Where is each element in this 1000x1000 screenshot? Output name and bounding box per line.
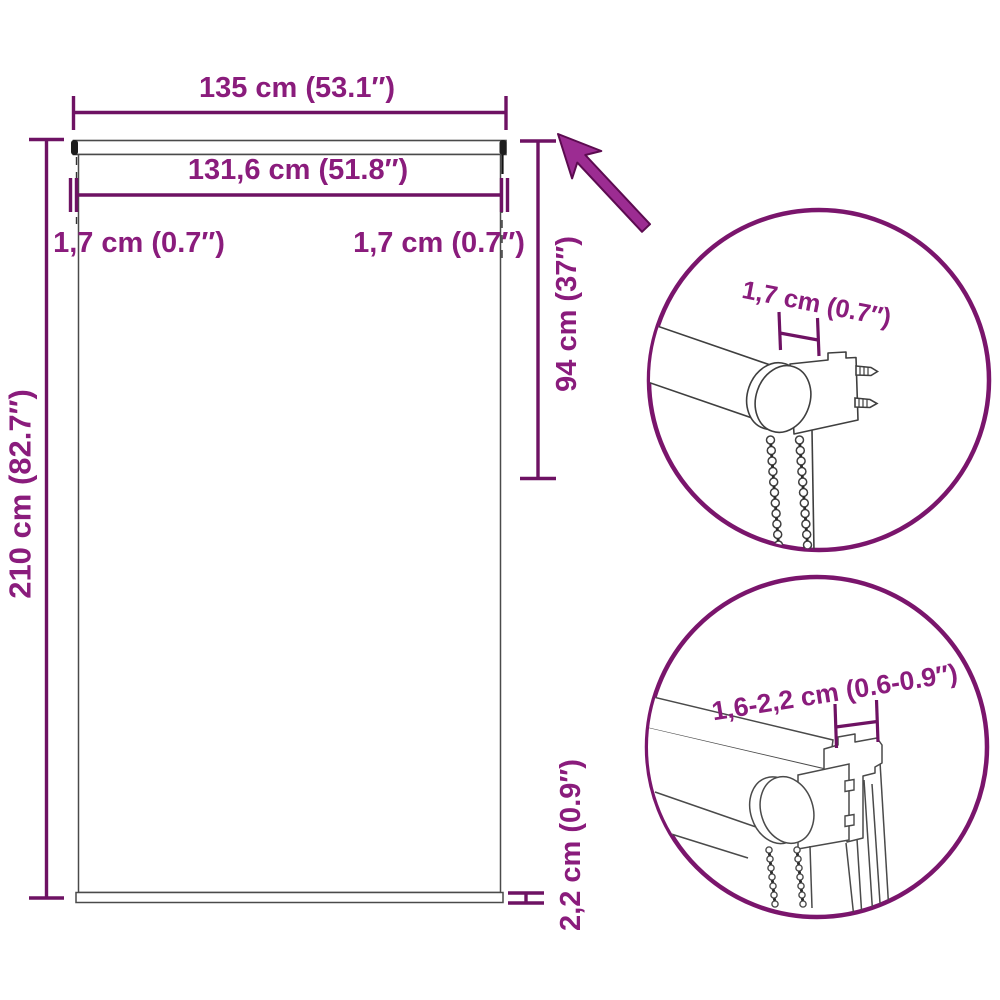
svg-text:94 cm (37″): 94 cm (37″) (551, 236, 583, 392)
svg-text:131,6 cm (51.8″): 131,6 cm (51.8″) (188, 154, 408, 186)
svg-text:210 cm (82.7″): 210 cm (82.7″) (3, 389, 38, 599)
svg-text:1,7 cm (0.7″): 1,7 cm (0.7″) (353, 227, 525, 259)
svg-text:135 cm (53.1″): 135 cm (53.1″) (199, 72, 395, 104)
svg-text:2,2 cm (0.9″): 2,2 cm (0.9″) (555, 759, 587, 931)
svg-text:1,7 cm (0.7″): 1,7 cm (0.7″) (53, 227, 225, 259)
